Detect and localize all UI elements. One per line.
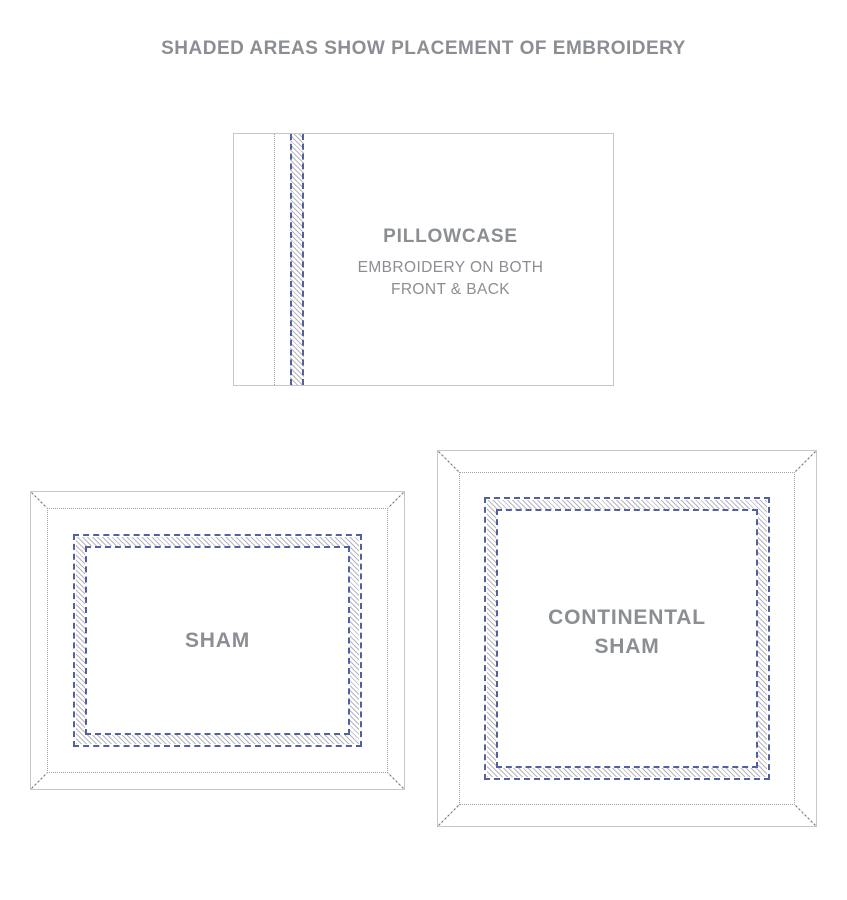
pillowcase-cuff-seam-dotted-line xyxy=(274,134,275,385)
pillowcase-note-line-2: FRONT & BACK xyxy=(288,279,613,301)
pillowcase-note-line-1: EMBROIDERY ON BOTH xyxy=(288,257,613,279)
sham-label: SHAM xyxy=(31,492,404,789)
continental-sham-diagram: CONTINENTAL SHAM xyxy=(437,450,817,827)
pillowcase-note: EMBROIDERY ON BOTH FRONT & BACK xyxy=(288,257,613,300)
continental-sham-label-line-1: CONTINENTAL xyxy=(548,603,706,632)
embroidery-placement-diagram: SHADED AREAS SHOW PLACEMENT OF EMBROIDER… xyxy=(0,0,847,900)
pillowcase-label: PILLOWCASE xyxy=(288,226,613,248)
sham-diagram: SHAM xyxy=(30,491,405,790)
pillowcase-diagram: PILLOWCASE EMBROIDERY ON BOTH FRONT & BA… xyxy=(233,133,614,386)
continental-sham-label: CONTINENTAL SHAM xyxy=(438,444,816,819)
page-title: SHADED AREAS SHOW PLACEMENT OF EMBROIDER… xyxy=(0,38,847,60)
continental-sham-label-line-2: SHAM xyxy=(594,632,659,661)
